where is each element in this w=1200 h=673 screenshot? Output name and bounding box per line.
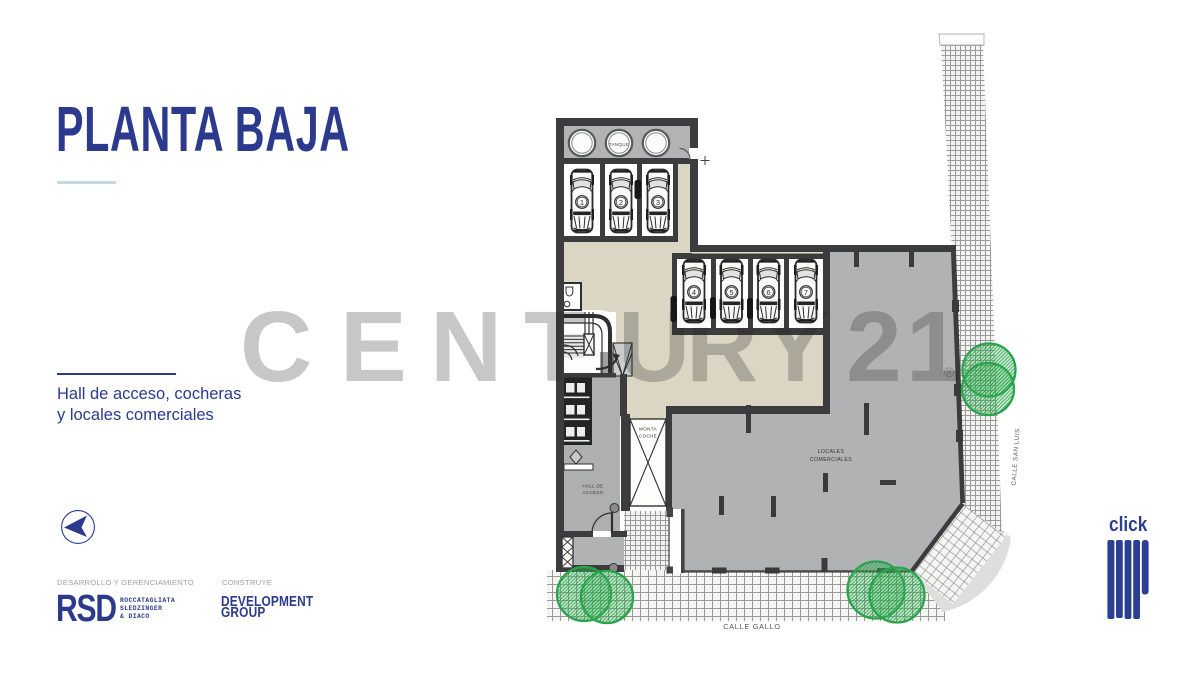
svg-text:CALLE SAN LUIS: CALLE SAN LUIS	[1011, 428, 1022, 486]
svg-text:LOCALES: LOCALES	[818, 449, 845, 455]
svg-text:®: ®	[944, 364, 955, 380]
svg-text:2: 2	[619, 198, 623, 207]
svg-text:ACCESO: ACCESO	[582, 490, 603, 495]
svg-text:MONTA: MONTA	[639, 427, 657, 432]
svg-text:COCHE: COCHE	[639, 434, 657, 439]
svg-text:TANQUE: TANQUE	[609, 142, 630, 147]
svg-text:COMERCIALES: COMERCIALES	[810, 457, 852, 463]
svg-text:CALLE GALLO: CALLE GALLO	[723, 622, 781, 631]
svg-text:HALL DE: HALL DE	[582, 484, 603, 489]
svg-text:1: 1	[580, 198, 584, 207]
svg-text:3: 3	[656, 198, 660, 207]
